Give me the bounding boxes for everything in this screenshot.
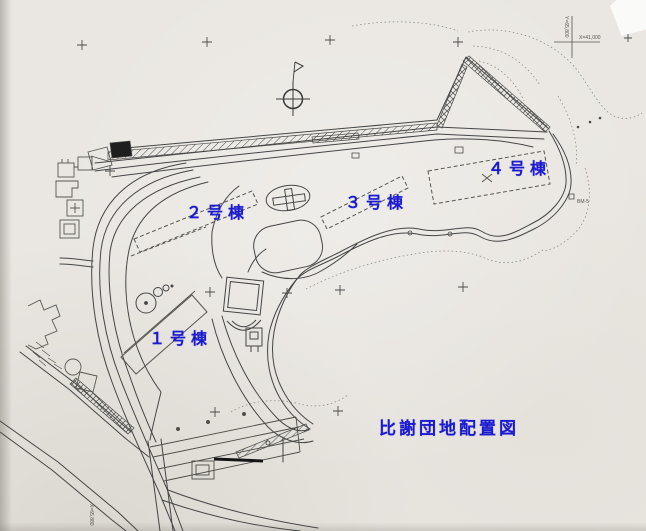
small-utility-building	[246, 328, 262, 352]
benchmark-label: BM-5	[577, 200, 589, 205]
fan-terrace	[227, 320, 261, 330]
building-2-label: ２号棟	[186, 206, 249, 222]
building-4-label: ４号棟	[488, 162, 551, 178]
oval-enclosure	[264, 183, 311, 214]
playground-circle	[136, 285, 173, 313]
survey-cross-marks	[77, 34, 632, 417]
plan-title: 比謝団地配置図	[379, 420, 519, 437]
parking-area	[150, 413, 304, 482]
contour-lines	[231, 22, 642, 412]
irregular-structures	[28, 300, 60, 349]
round-tank	[65, 359, 81, 375]
scanned-site-plan: ２号棟 ３号棟 ４号棟 １号棟 比謝団地配置図 Y=65,800 X=41,00…	[0, 0, 646, 531]
building-3-label: ３号棟	[345, 196, 408, 212]
site-plan-linework	[0, 0, 646, 531]
grid-vertical-coordinate-label: Y=65,800	[563, 16, 568, 38]
grid-horizontal-coordinate-label: X=41,000	[579, 36, 601, 41]
building-1-label: １号棟	[149, 332, 212, 348]
north-arrow-icon	[276, 62, 310, 116]
building-2-outline	[131, 191, 258, 256]
embankment-hatch-strips	[70, 56, 550, 458]
cross-shaped-building	[272, 187, 307, 212]
thick-wall-line	[214, 459, 263, 461]
benchmark-square-icon	[569, 194, 574, 199]
road-details	[352, 117, 601, 236]
filled-structure	[110, 141, 132, 158]
roads-and-boundaries	[0, 57, 571, 531]
square-building	[223, 277, 263, 315]
bottom-coordinate-label: X=65,880	[88, 504, 93, 526]
